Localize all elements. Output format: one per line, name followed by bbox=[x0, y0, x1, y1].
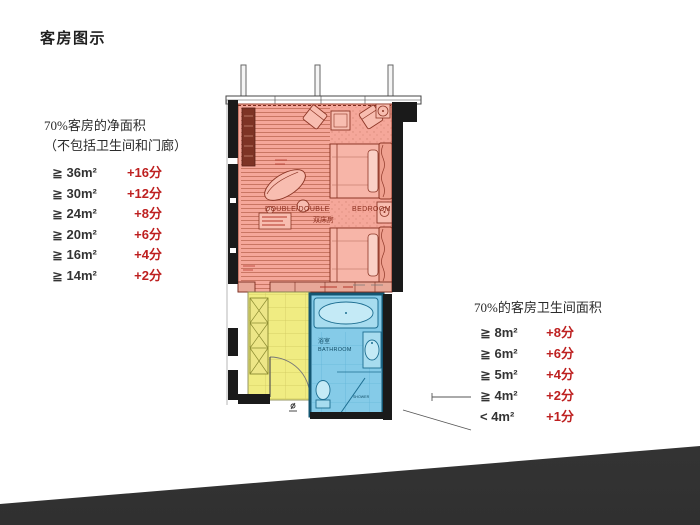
bath-threshold: < 4m² bbox=[480, 409, 532, 424]
bath-threshold: ≧ 5m² bbox=[480, 367, 532, 383]
bed-1 bbox=[330, 143, 392, 199]
area-threshold: ≧ 36m² bbox=[52, 165, 116, 181]
guestroom-floorplan: DOUBLE/DOUBLE BEDROOM 双床房 bbox=[225, 60, 475, 432]
area-threshold: ≧ 24m² bbox=[52, 206, 116, 222]
toilet bbox=[316, 381, 330, 400]
score-row: ≧ 5m² +4分 bbox=[480, 364, 602, 385]
score-row: ≧ 36m² +16分 bbox=[52, 162, 187, 183]
slide: 客房图示 70%客房的净面积 （不包括卫生间和门廊） ≧ 36m² +16分 ≧… bbox=[0, 0, 700, 525]
score-row: ≧ 4m² +2分 bbox=[480, 385, 602, 406]
bath-score: +8分 bbox=[532, 322, 574, 341]
area-score: +6分 bbox=[116, 224, 162, 243]
bathroom-label-cn: 浴室 bbox=[318, 337, 330, 345]
area-score: +8分 bbox=[116, 203, 162, 222]
door-sign-symbol bbox=[289, 403, 297, 411]
score-row: ≧ 20m² +6分 bbox=[52, 224, 187, 245]
bath-score: +2分 bbox=[532, 385, 574, 404]
page-title: 客房图示 bbox=[40, 27, 106, 48]
bathroom-area-heading: 70%的客房卫生间面积 bbox=[474, 298, 602, 318]
score-row: ≧ 30m² +12分 bbox=[52, 183, 187, 204]
area-score: +2分 bbox=[116, 265, 162, 284]
wardrobe-unit bbox=[242, 108, 255, 166]
score-row: ≧ 16m² +4分 bbox=[52, 244, 187, 265]
area-score: +4分 bbox=[116, 244, 162, 263]
area-score: +12分 bbox=[116, 183, 162, 202]
bath-score: +1分 bbox=[532, 406, 574, 425]
score-row: ≧ 24m² +8分 bbox=[52, 203, 187, 224]
bedroom-zone: DOUBLE/DOUBLE BEDROOM 双床房 bbox=[238, 104, 392, 292]
bathroom-area-score-panel: 70%的客房卫生间面积 ≧ 8m² +8分 ≧ 6m² +6分 ≧ 5m² +4… bbox=[474, 298, 602, 427]
bedroom-label-en1: DOUBLE/DOUBLE bbox=[265, 206, 330, 213]
room-area-heading-line2: （不包括卫生间和门廊） bbox=[44, 136, 187, 156]
bedroom-label-cn: 双床房 bbox=[313, 215, 334, 224]
area-threshold: ≧ 30m² bbox=[52, 186, 116, 202]
score-row: ≧ 14m² +2分 bbox=[52, 265, 187, 286]
window-mullion bbox=[388, 65, 393, 97]
area-threshold: ≧ 14m² bbox=[52, 268, 116, 284]
area-threshold: ≧ 16m² bbox=[52, 247, 116, 263]
bath-threshold: ≧ 8m² bbox=[480, 325, 532, 341]
entry-corridor-zone bbox=[248, 292, 310, 400]
window-mullion bbox=[315, 65, 320, 97]
window-mullion bbox=[241, 65, 246, 97]
room-area-score-panel: 70%客房的净面积 （不包括卫生间和门廊） ≧ 36m² +16分 ≧ 30m²… bbox=[44, 116, 187, 285]
area-threshold: ≧ 20m² bbox=[52, 227, 116, 243]
score-row: ≧ 8m² +8分 bbox=[480, 322, 602, 343]
shower-label: SHOWER bbox=[353, 395, 370, 399]
room-area-heading-line1: 70%客房的净面积 bbox=[44, 116, 187, 136]
area-score: +16分 bbox=[116, 162, 162, 181]
bathroom-label-en: BATHROOM bbox=[318, 347, 352, 353]
bathroom-area-score-list: ≧ 8m² +8分 ≧ 6m² +6分 ≧ 5m² +4分 ≧ 4m² +2分 … bbox=[474, 322, 602, 427]
score-row: < 4m² +1分 bbox=[480, 406, 602, 427]
score-row: ≧ 6m² +6分 bbox=[480, 343, 602, 364]
bath-score: +4分 bbox=[532, 364, 574, 383]
bath-threshold: ≧ 4m² bbox=[480, 388, 532, 404]
room-area-score-list: ≧ 36m² +16分 ≧ 30m² +12分 ≧ 24m² +8分 ≧ 20m… bbox=[44, 162, 187, 285]
bedroom-label-en2: BEDROOM bbox=[352, 206, 391, 213]
bath-threshold: ≧ 6m² bbox=[480, 346, 532, 362]
bathroom-zone: 浴室 BATHROOM SHOWER bbox=[310, 294, 383, 416]
bath-score: +6分 bbox=[532, 343, 574, 362]
bed-2 bbox=[330, 227, 392, 283]
